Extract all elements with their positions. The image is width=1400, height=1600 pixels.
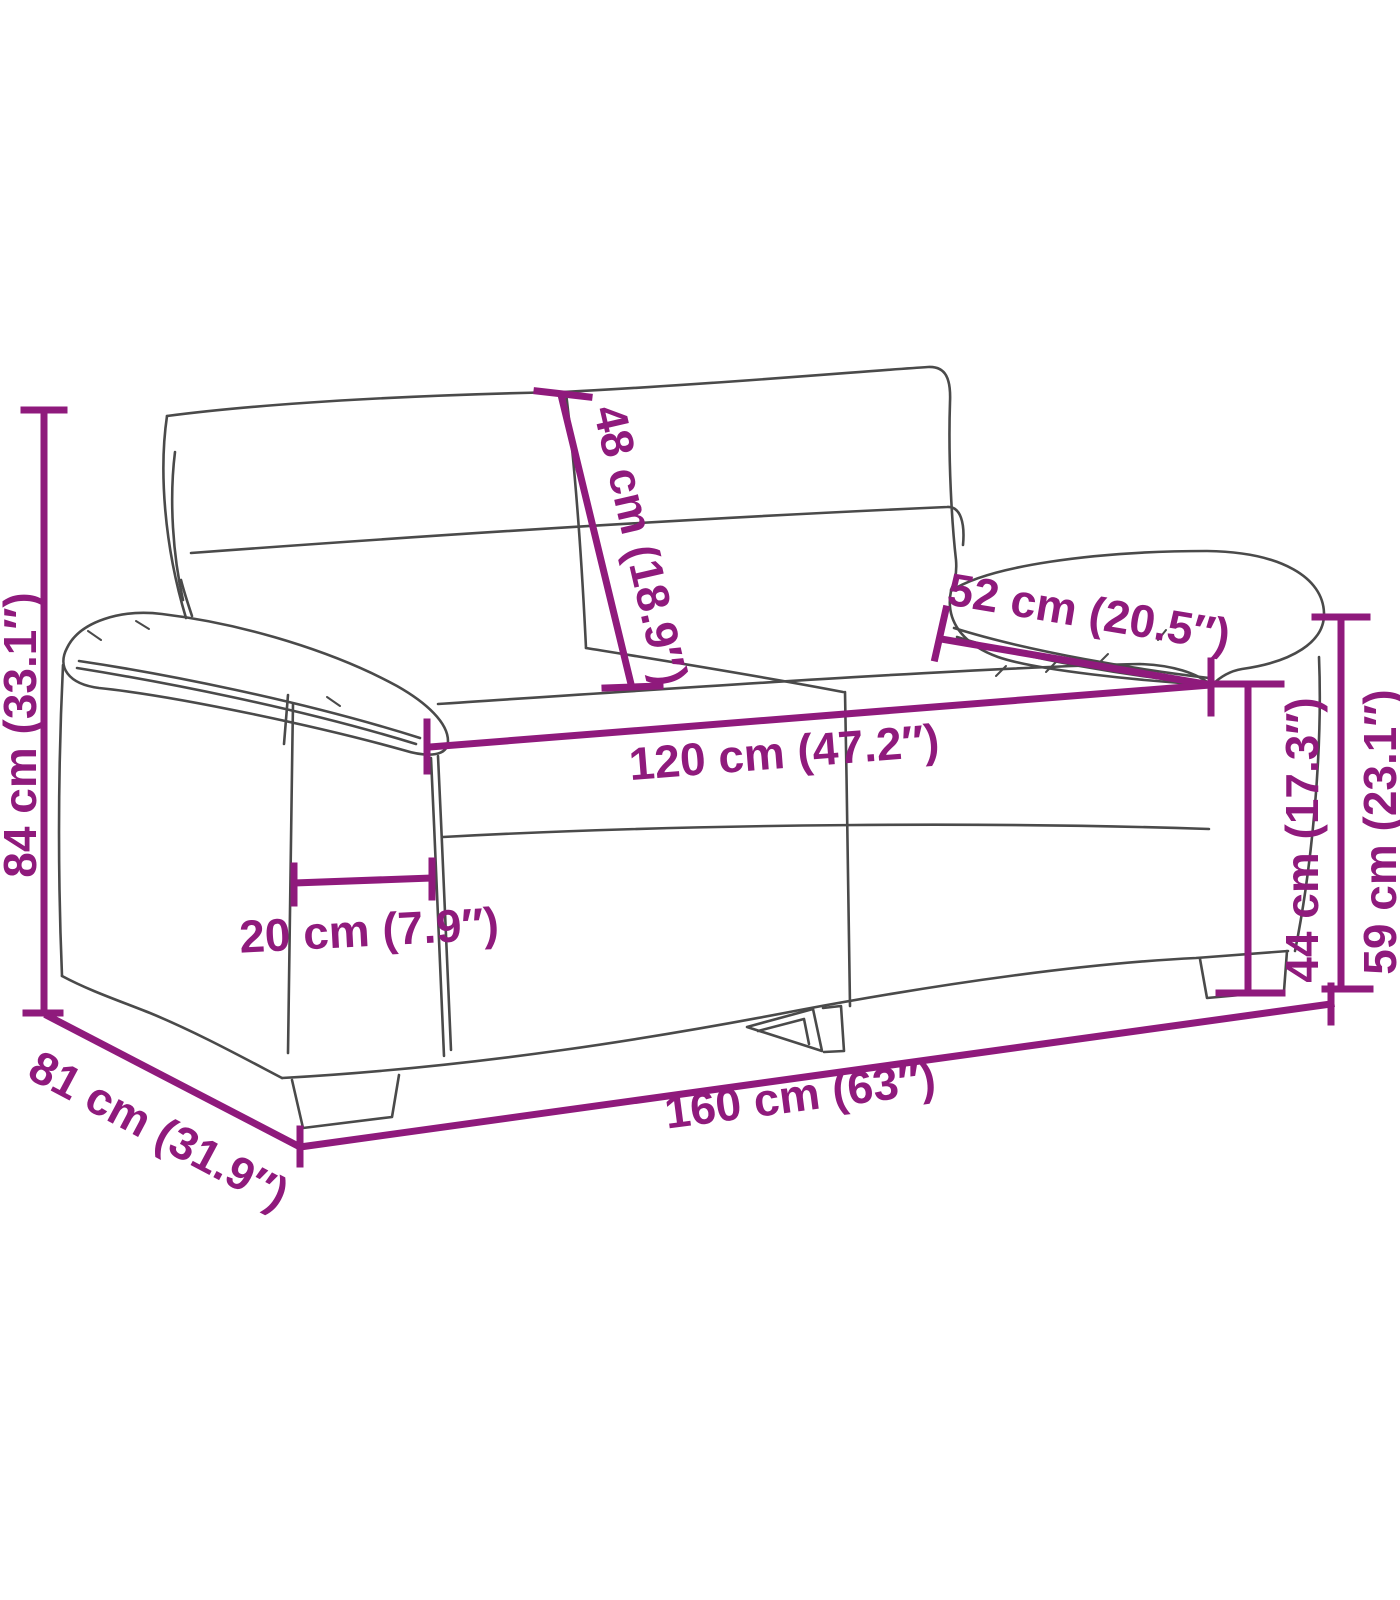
backrest-left-wrinkle [172,452,183,600]
stitch-mark [996,666,1006,676]
seat-front-seam [443,825,1209,837]
stitch-mark [327,697,340,706]
dimension-label-overall-height: 84 cm (33.1″) [0,592,47,877]
front-left-foot [292,1075,399,1128]
dimension-tick [935,609,946,658]
dimension-line [294,878,432,883]
dimension-line-armrest-width-20cm [294,861,432,903]
sofa-left-flank-bottom [62,976,282,1078]
dimension-label-seat-height: 44 cm (17.3″) [1275,697,1329,982]
left-armrest-stitch-line-2 [77,668,416,744]
backrest-top-left-cushion [167,392,563,416]
stitch-mark [88,631,101,640]
sofa-line-art [0,0,1400,1600]
sofa-base-bottom-edge [282,951,1288,1078]
dimension-diagram: 84 cm (33.1″) 48 cm (18.9″) 52 cm (20.5″… [0,0,1400,1600]
dimension-line-seat-height-44cm [1214,684,1282,993]
left-armrest-pad [63,613,448,755]
middle-foot-post [823,1006,844,1052]
stitch-mark [136,621,149,629]
sofa-left-outer-edge [59,665,63,976]
dimension-label-armrest-height: 59 cm (23.1″) [1353,689,1400,974]
